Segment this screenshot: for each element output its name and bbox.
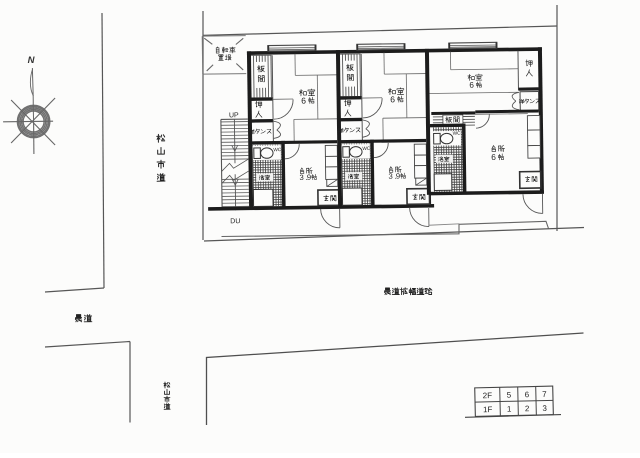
svg-text:WC: WC — [453, 131, 462, 137]
svg-text:5: 5 — [507, 391, 512, 400]
svg-text:6: 6 — [491, 152, 496, 162]
svg-text:DU: DU — [230, 218, 240, 225]
svg-text:3: 3 — [299, 173, 303, 182]
svg-text:7: 7 — [542, 390, 547, 399]
svg-text:WC: WC — [273, 147, 282, 153]
svg-text:9: 9 — [396, 172, 400, 181]
svg-text:1: 1 — [507, 405, 512, 414]
svg-text:3: 3 — [388, 172, 392, 181]
svg-text:6: 6 — [301, 96, 306, 106]
svg-text:6: 6 — [525, 390, 530, 399]
svg-text:N: N — [28, 55, 36, 66]
svg-text:2F: 2F — [483, 391, 493, 400]
svg-text:2: 2 — [525, 404, 530, 413]
svg-text:6: 6 — [469, 81, 474, 90]
svg-text:3: 3 — [542, 404, 547, 413]
svg-text:UP: UP — [229, 112, 239, 119]
svg-text:1F: 1F — [483, 405, 493, 414]
svg-text:WC: WC — [362, 146, 371, 152]
svg-text:6: 6 — [390, 94, 395, 104]
svg-text:9: 9 — [307, 173, 311, 182]
